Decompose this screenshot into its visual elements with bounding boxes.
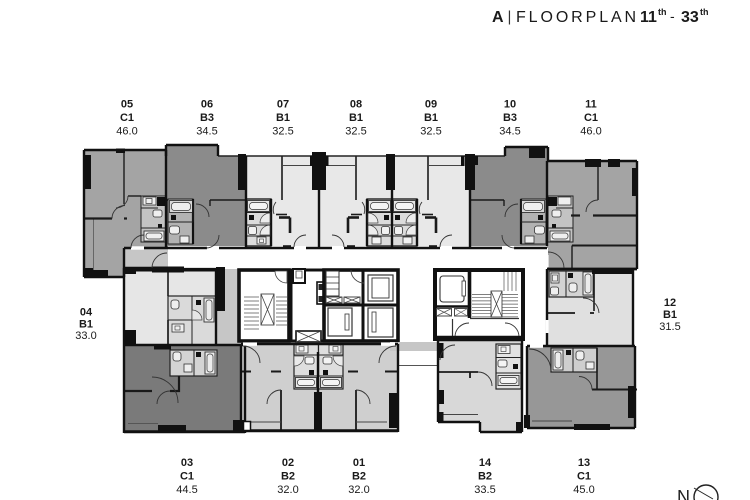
svg-text:32.0: 32.0: [348, 484, 369, 496]
svg-text:B2: B2: [352, 471, 366, 483]
svg-text:B3: B3: [503, 112, 517, 124]
svg-text:th: th: [658, 7, 667, 17]
svg-text:34.5: 34.5: [499, 126, 520, 138]
svg-text:14: 14: [479, 457, 492, 469]
svg-text:32.5: 32.5: [345, 126, 366, 138]
svg-text:32.0: 32.0: [277, 484, 298, 496]
svg-text:A: A: [492, 9, 504, 26]
svg-text:-: -: [670, 8, 675, 24]
svg-text:46.0: 46.0: [580, 126, 601, 138]
svg-text:46.0: 46.0: [116, 126, 137, 138]
svg-text:04: 04: [80, 307, 93, 319]
svg-text:33.0: 33.0: [75, 330, 96, 342]
svg-text:|: |: [508, 9, 512, 26]
svg-text:FLOORPLAN: FLOORPLAN: [516, 9, 639, 26]
svg-text:B2: B2: [478, 471, 492, 483]
svg-text:13: 13: [578, 457, 590, 469]
svg-text:B1: B1: [663, 309, 677, 321]
svg-text:B1: B1: [79, 318, 93, 330]
svg-text:B1: B1: [424, 112, 438, 124]
svg-text:12: 12: [664, 297, 676, 309]
svg-text:07: 07: [277, 99, 289, 111]
svg-text:02: 02: [282, 457, 294, 469]
svg-text:33.5: 33.5: [474, 484, 495, 496]
svg-text:B2: B2: [281, 471, 295, 483]
svg-text:C1: C1: [180, 471, 194, 483]
svg-text:01: 01: [353, 457, 365, 469]
svg-text:C1: C1: [577, 471, 591, 483]
svg-text:08: 08: [350, 99, 362, 111]
svg-text:44.5: 44.5: [176, 484, 197, 496]
svg-text:32.5: 32.5: [420, 126, 441, 138]
svg-text:th: th: [700, 7, 709, 17]
svg-text:B3: B3: [200, 112, 214, 124]
svg-text:C1: C1: [120, 112, 134, 124]
svg-text:03: 03: [181, 457, 193, 469]
svg-text:32.5: 32.5: [272, 126, 293, 138]
svg-text:11: 11: [585, 99, 597, 111]
svg-text:31.5: 31.5: [659, 321, 680, 333]
svg-text:B1: B1: [276, 112, 290, 124]
svg-text:10: 10: [504, 99, 516, 111]
svg-text:34.5: 34.5: [196, 126, 217, 138]
svg-text:09: 09: [425, 99, 437, 111]
svg-text:N: N: [677, 487, 690, 500]
svg-text:33: 33: [681, 9, 699, 26]
svg-text:05: 05: [121, 99, 133, 111]
svg-text:11: 11: [640, 9, 657, 26]
svg-text:06: 06: [201, 99, 213, 111]
svg-text:C1: C1: [584, 112, 598, 124]
svg-text:45.0: 45.0: [573, 484, 594, 496]
svg-text:B1: B1: [349, 112, 363, 124]
